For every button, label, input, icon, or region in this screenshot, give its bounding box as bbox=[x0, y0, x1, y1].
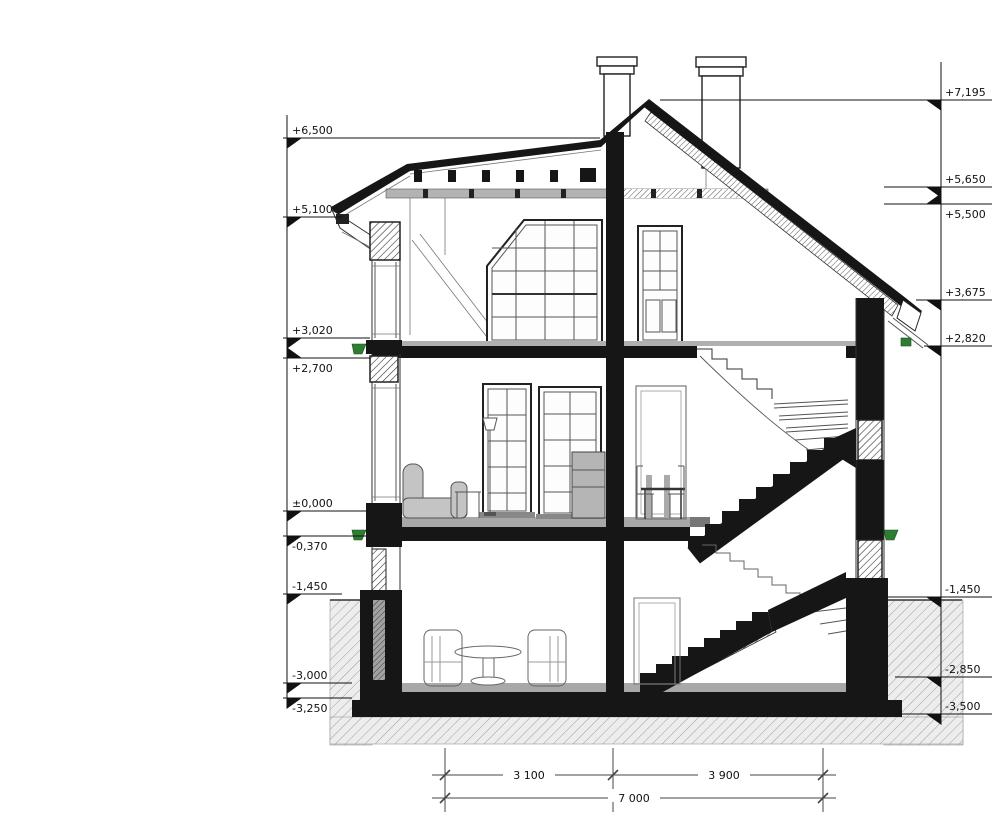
chimney-1-cap bbox=[600, 66, 634, 74]
dimension-lines: 3 100 3 900 7 000 bbox=[432, 748, 836, 812]
level-label: -2,850 bbox=[945, 663, 980, 676]
table-pedestal bbox=[483, 658, 494, 678]
basement-wall-lining bbox=[373, 600, 385, 680]
dim-label-total: 7 000 bbox=[618, 792, 650, 805]
door-frame bbox=[636, 386, 686, 519]
dining-set-ground-floor bbox=[636, 386, 686, 519]
level-marker-5500: +5,500 bbox=[884, 194, 992, 221]
ground-floor-window-1 bbox=[479, 384, 535, 518]
main-flight-steps bbox=[688, 436, 854, 563]
section-drawing: +6,500 +5,100 +3,020 +2,700 ±0,000 -0,37… bbox=[0, 0, 1000, 818]
attic-ceiling bbox=[386, 189, 768, 198]
basement-flight-outline bbox=[702, 545, 800, 601]
basement-furniture bbox=[424, 598, 680, 686]
basement-floor-slab bbox=[372, 683, 884, 717]
floor-lamp-base bbox=[484, 512, 496, 516]
basement-chair-left bbox=[424, 630, 462, 686]
left-wall bbox=[366, 222, 402, 598]
attic-floor-slab bbox=[372, 341, 884, 358]
armchair-arm bbox=[451, 482, 467, 518]
level-label: +3,675 bbox=[945, 286, 986, 299]
chimney-2-cap-top bbox=[696, 57, 746, 67]
level-marker-0000: ±0,000 bbox=[283, 497, 368, 521]
floor-lamp-shade bbox=[483, 418, 497, 430]
left-eave-block bbox=[336, 214, 349, 224]
level-label: -3,500 bbox=[945, 700, 980, 713]
middle-wall bbox=[606, 132, 624, 692]
attic-flight-outline bbox=[697, 349, 772, 399]
level-label: +5,500 bbox=[945, 208, 986, 221]
basement-chair-right bbox=[528, 630, 566, 686]
chimney-2-cap bbox=[699, 67, 743, 76]
attic-window bbox=[482, 220, 608, 347]
right-foundation bbox=[846, 578, 888, 717]
level-label: +5,650 bbox=[945, 173, 986, 186]
level-marker-3675: +3,675 bbox=[916, 286, 992, 310]
left-footing bbox=[352, 700, 410, 717]
basement-flight-landing bbox=[768, 572, 846, 632]
dim-label-segment-2: 3 900 bbox=[708, 769, 740, 782]
ground-floor-slab bbox=[372, 517, 710, 541]
level-label: +2,820 bbox=[945, 332, 986, 345]
level-label: +5,100 bbox=[292, 203, 333, 216]
level-label: +3,020 bbox=[292, 324, 333, 337]
level-label: -1,450 bbox=[945, 583, 980, 596]
architectural-section-page: +6,500 +5,100 +3,020 +2,700 ±0,000 -0,37… bbox=[0, 0, 1000, 818]
right-footing bbox=[840, 700, 902, 717]
cabinet bbox=[572, 452, 605, 518]
roof-left-slope bbox=[331, 99, 649, 216]
round-table-top bbox=[455, 646, 521, 658]
roof-right-slope bbox=[644, 99, 922, 319]
level-label: -0,370 bbox=[292, 540, 327, 553]
level-label: +7,195 bbox=[945, 86, 986, 99]
level-label: -3,250 bbox=[292, 702, 327, 715]
level-label: -3,000 bbox=[292, 669, 327, 682]
table-base bbox=[471, 677, 505, 685]
dim-label-segment-1: 3 100 bbox=[513, 769, 545, 782]
attic-door bbox=[638, 226, 682, 345]
stair-curve bbox=[700, 356, 812, 452]
soil-bottom-band bbox=[330, 717, 963, 744]
chimney-1-cap-top bbox=[597, 57, 637, 66]
level-label: +6,500 bbox=[292, 124, 333, 137]
level-marker-6500: +6,500 bbox=[283, 124, 600, 148]
level-label: ±0,000 bbox=[292, 497, 333, 510]
level-marker-5650: +5,650 bbox=[884, 173, 992, 197]
level-label: +2,700 bbox=[292, 362, 333, 375]
level-marker-2820: +2,820 bbox=[924, 332, 992, 356]
level-label: -1,450 bbox=[292, 580, 327, 593]
